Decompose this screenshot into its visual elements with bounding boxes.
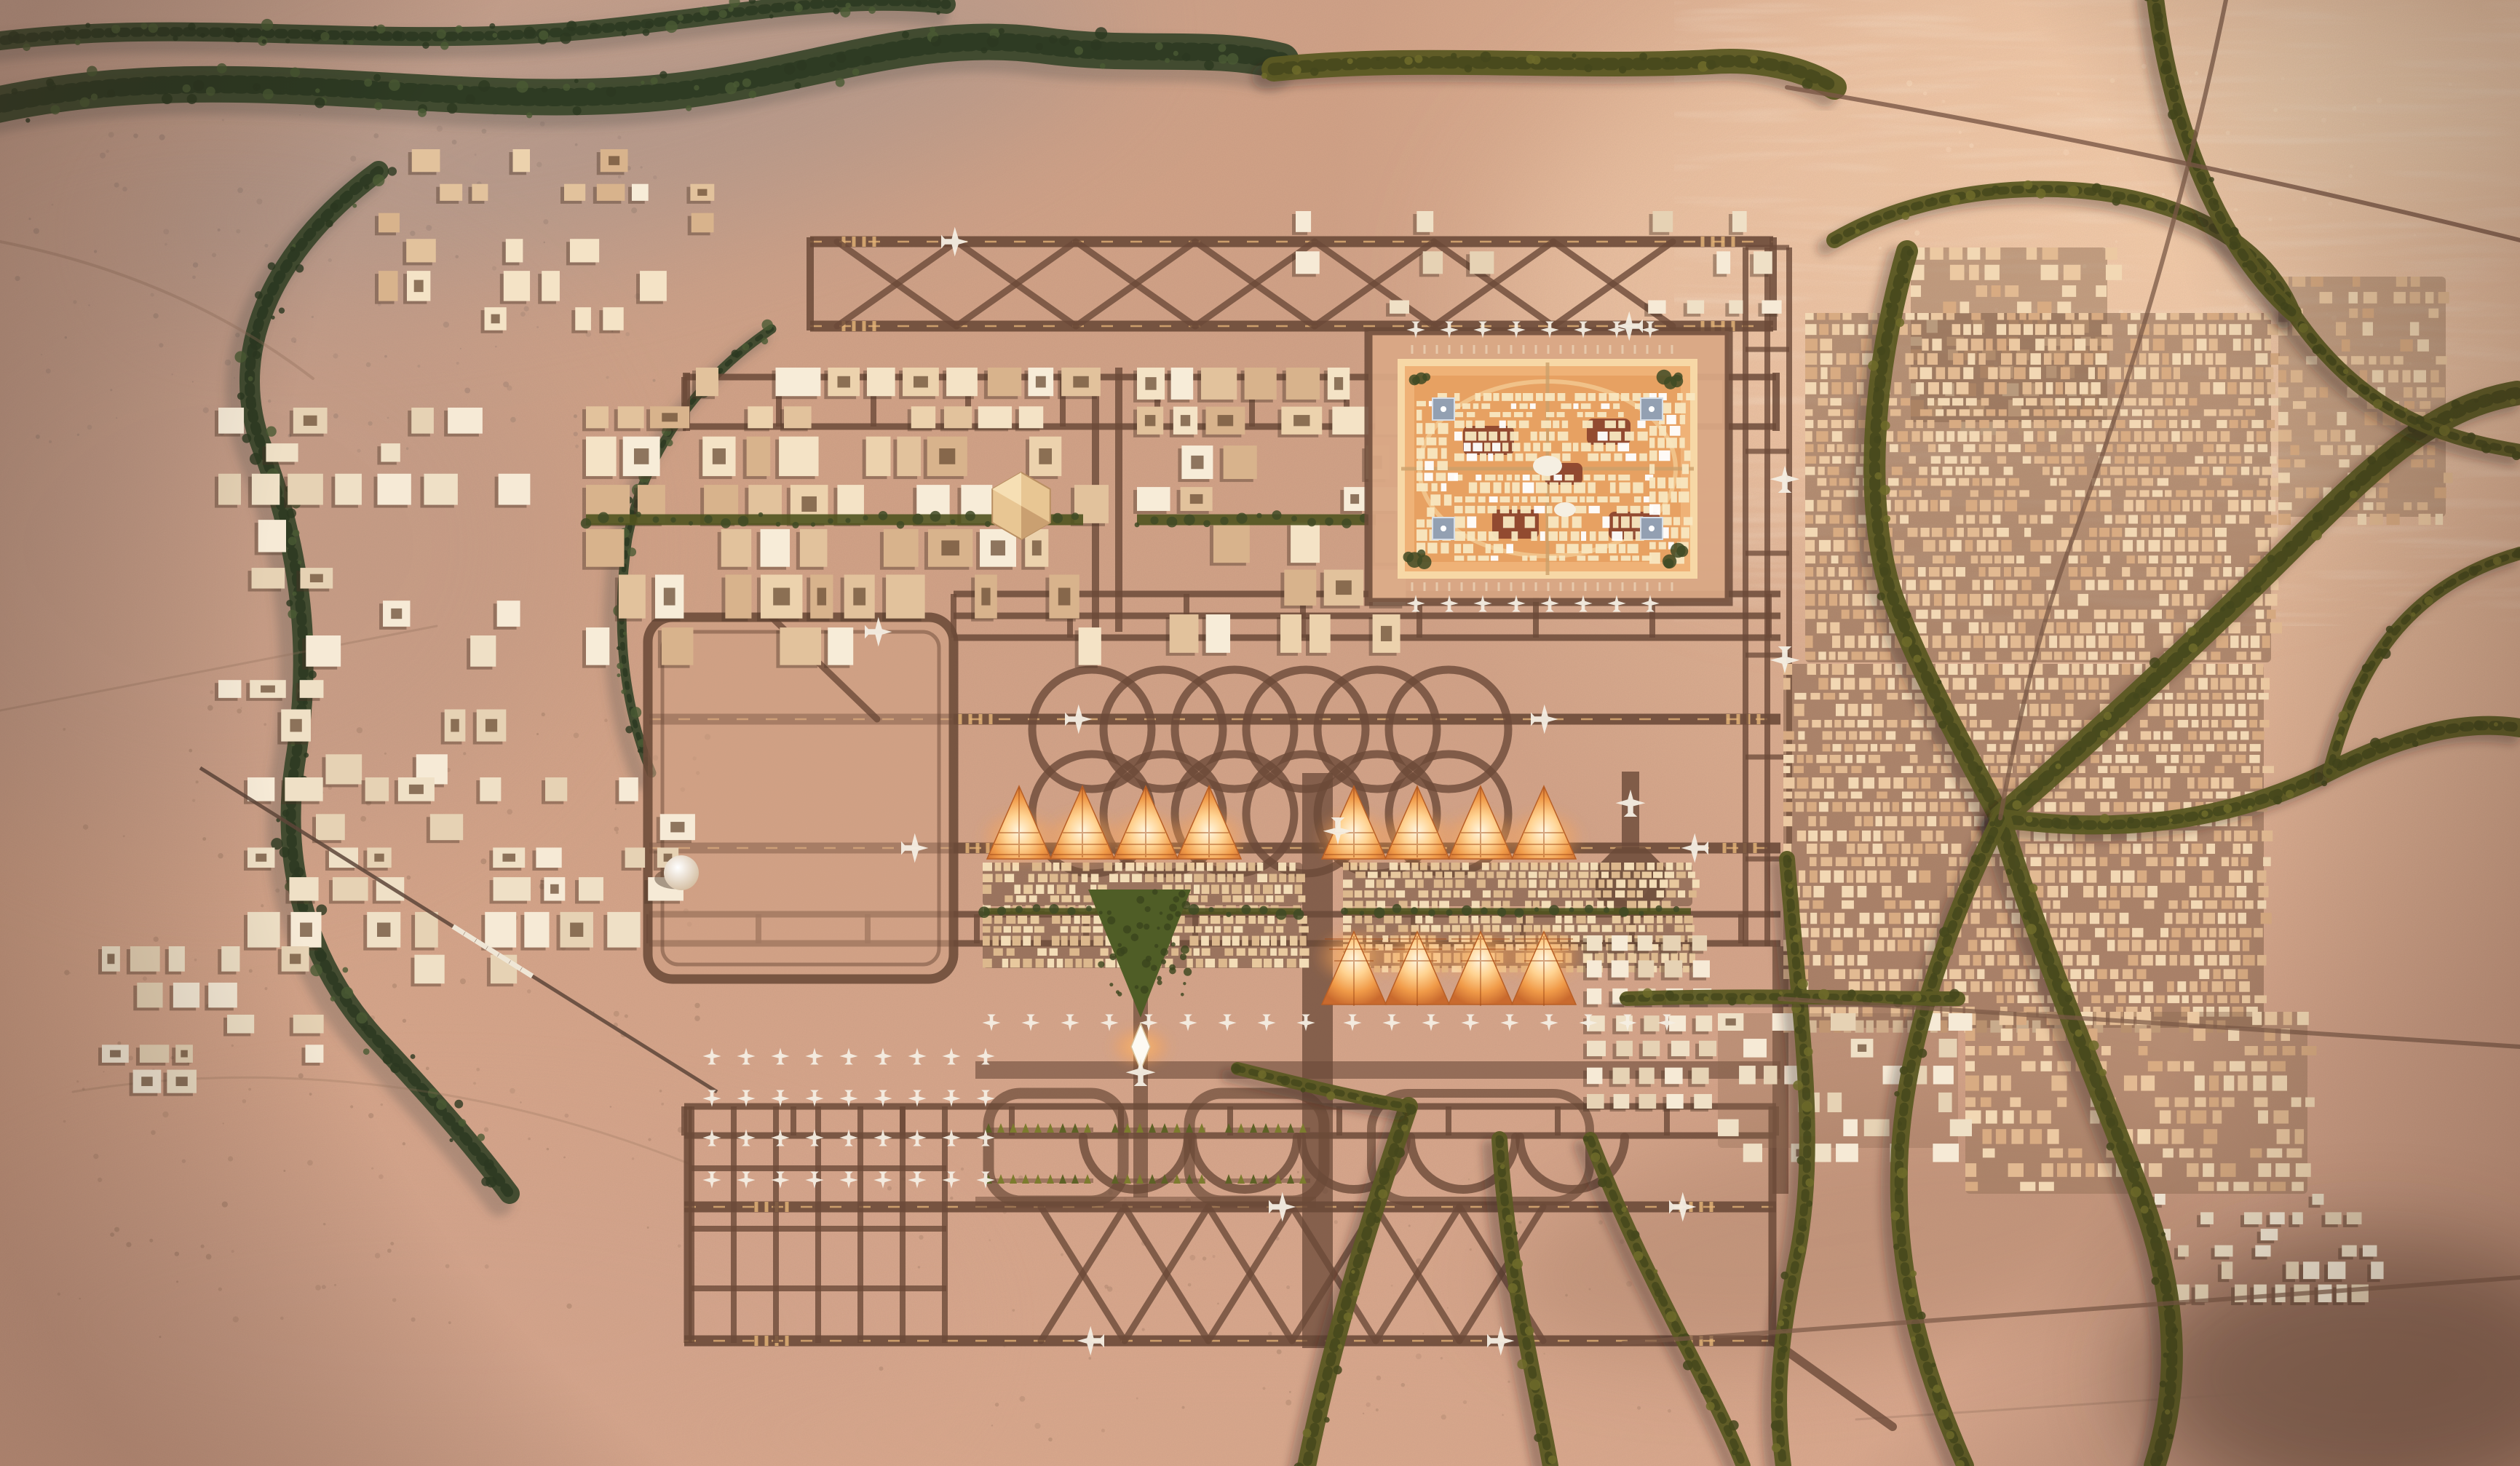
scene-canvas: [0, 0, 2520, 1466]
vignette: [0, 0, 2520, 1466]
aerial-masterplan-render: [0, 0, 2520, 1466]
